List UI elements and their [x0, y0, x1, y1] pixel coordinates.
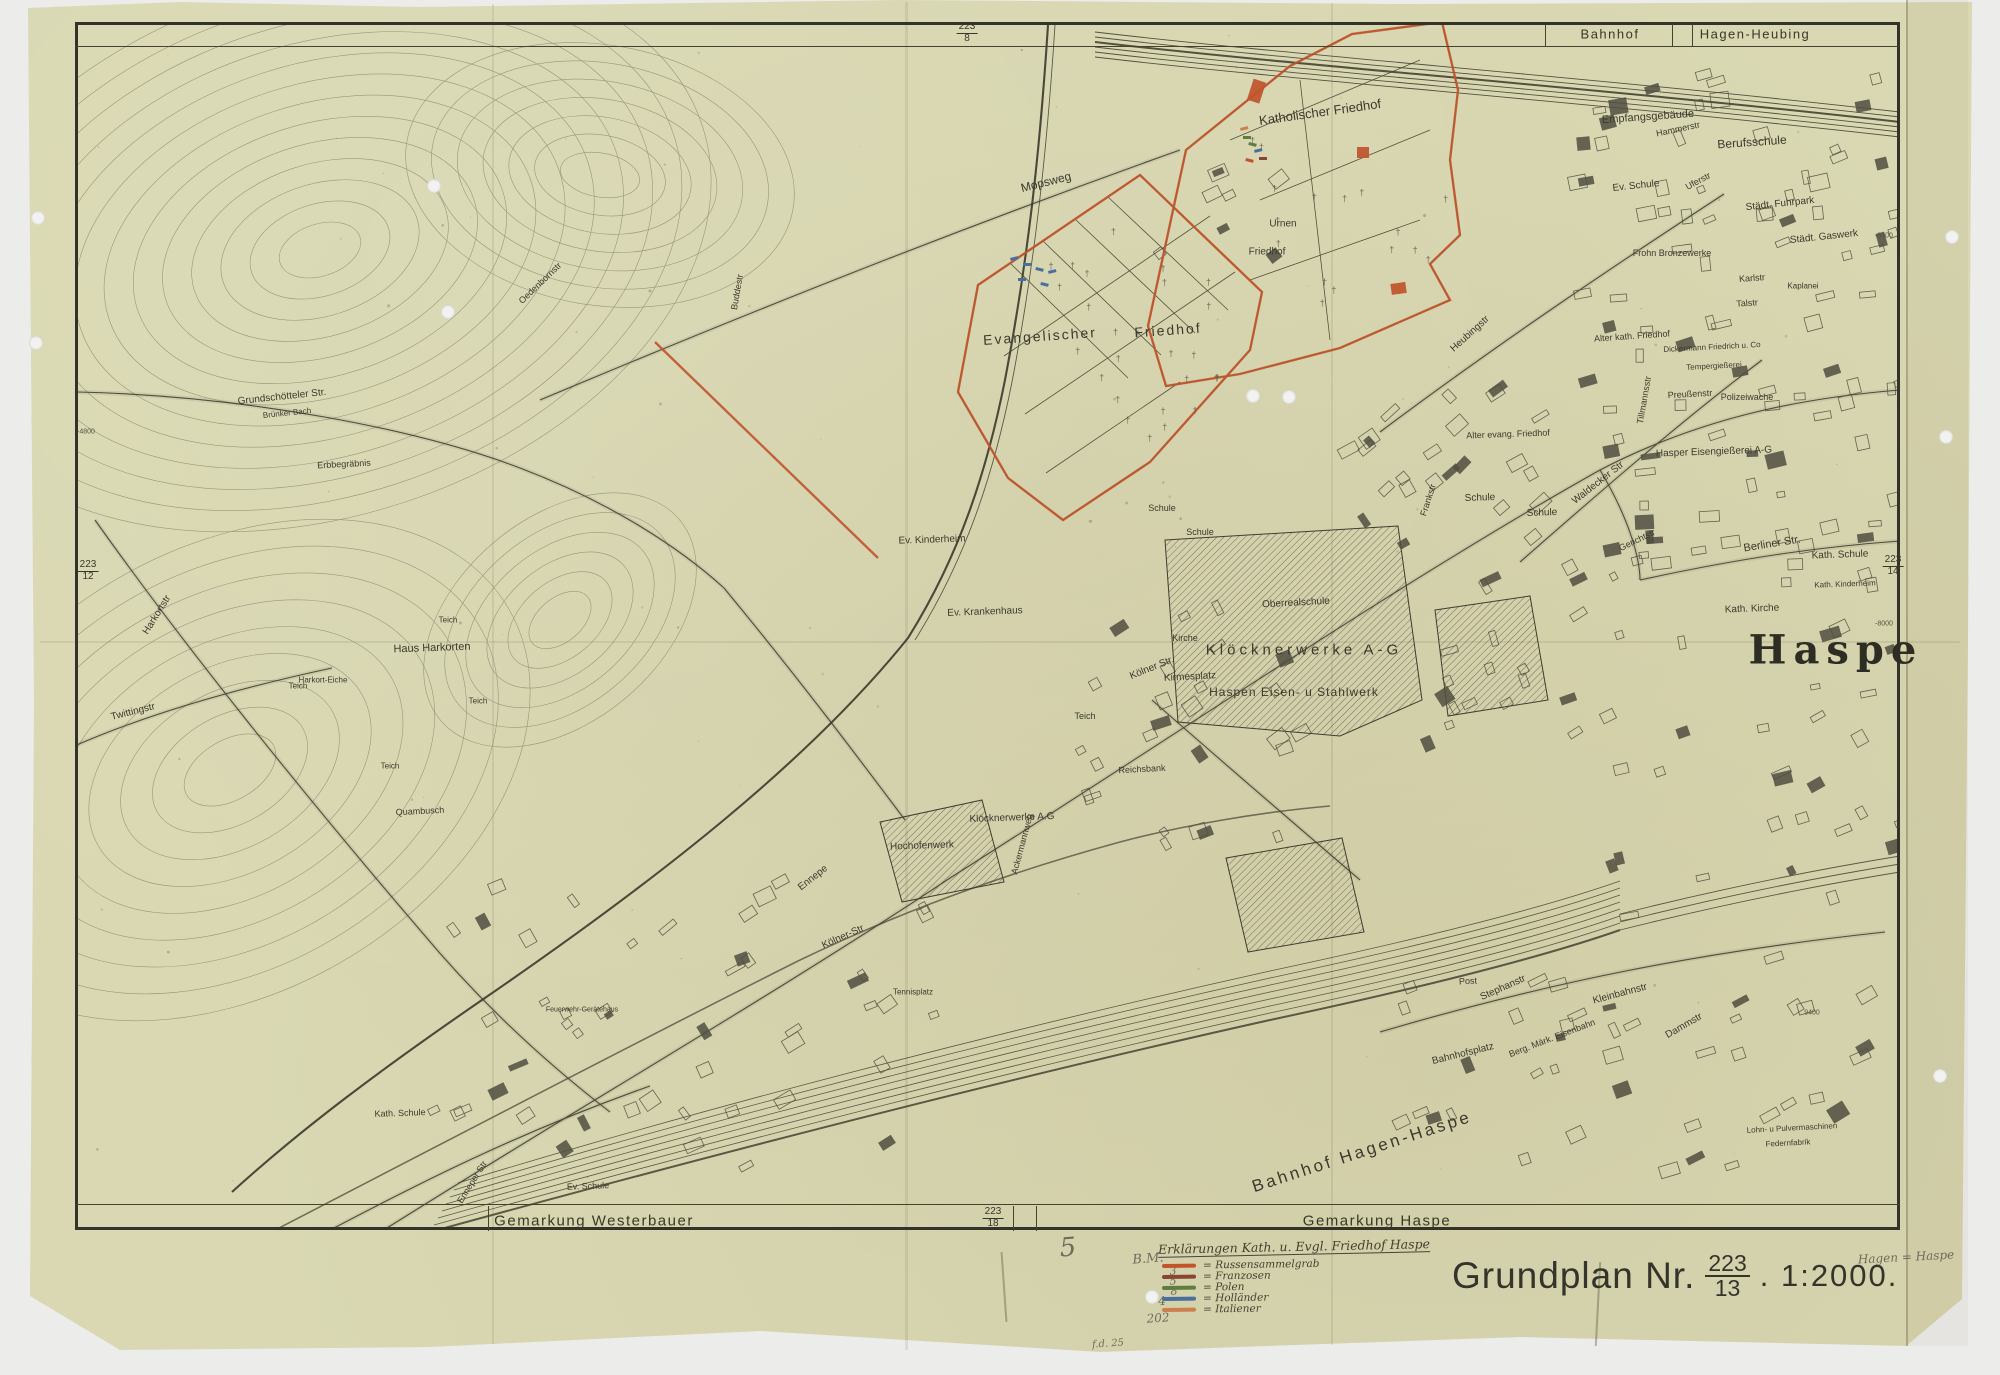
map-label: Berg. Märk. Eisenbahn [1507, 1017, 1596, 1059]
title-label: Grundplan Nr. [1452, 1255, 1695, 1297]
map-label: Ev. Schule [1612, 178, 1660, 194]
map-label: Harkort-Eiche [299, 676, 348, 685]
legend-title: Erklärungen Kath. u. Evgl. Friedhof Hasp… [1158, 1236, 1430, 1258]
map-label: Twittingstr [110, 701, 156, 723]
map-label: Alter evang. Friedhof [1466, 428, 1550, 441]
map-label: Teich [1074, 711, 1095, 721]
map-label: Teich [439, 616, 458, 625]
sheet-ref-denominator: 18 [987, 1218, 998, 1229]
title-block: Grundplan Nr. 223 13 . 1:2000. [1452, 1252, 1898, 1300]
map-label: Schule [1186, 527, 1214, 537]
map-label: Stephanstr [1479, 973, 1528, 1003]
legend-color-swatch [1162, 1263, 1196, 1267]
sheet-reference: 22314 [1883, 555, 1904, 577]
map-label: Haspen Eisen- u Stahlwerk [1209, 685, 1379, 699]
punch-hole [1145, 1290, 1159, 1304]
sheet-reference: 22312 [78, 560, 99, 582]
map-label: Dickermann Friedrich u. Co [1663, 340, 1761, 354]
map-label: Klöcknerwerke A-G [1206, 642, 1402, 659]
grid-coordinate-label: 9400 [1804, 1010, 1820, 1017]
map-label: Haus Harkorten [393, 641, 470, 656]
map-label: Haspe [1749, 627, 1924, 674]
map-label: Tennisplatz [893, 988, 933, 997]
map-label: Karlstr [1739, 272, 1766, 284]
sheet-reference: 22318 [983, 1207, 1004, 1229]
map-label: Städt. Fuhrpark [1745, 195, 1815, 213]
map-label: Ev. Schule [567, 1180, 610, 1191]
map-label: Erbbegräbnis [317, 458, 371, 471]
map-label: Hochofenwerk [890, 839, 954, 852]
map-label: Quambusch [396, 805, 445, 818]
sheet-reference: 2238 [957, 22, 978, 44]
map-label: Schule [1465, 492, 1496, 504]
legend-item: = Italiener [1158, 1300, 1458, 1315]
map-label: Kirmesplatz [1164, 670, 1217, 684]
map-label: Ennepe [796, 863, 830, 893]
map-label: Kath. Kirche [1725, 603, 1780, 616]
map-label: Berliner Str. [1743, 534, 1802, 555]
map-label: Bahnhofsplatz [1431, 1041, 1495, 1067]
map-label: Urnen [1269, 219, 1296, 230]
legend-color-swatch [1162, 1274, 1196, 1278]
handwritten-annotation: 5 [1059, 1232, 1078, 1263]
map-label: Friedhof [1249, 247, 1286, 258]
map-label: Schule [1148, 503, 1176, 513]
map-label: Hasper Eisengießerei A-G [1656, 444, 1772, 459]
map-label: Grundschötteler Str. [237, 387, 327, 407]
map-label: Oberrealschule [1262, 596, 1330, 611]
map-label: Tillmannsstr [1635, 375, 1653, 424]
punch-hole [441, 305, 455, 319]
sheet-ref-denominator: 8 [964, 33, 970, 44]
punch-hole [1939, 430, 1953, 444]
punch-hole [1933, 1069, 1947, 1083]
grid-coordinate-label: -8000 [1875, 621, 1893, 628]
punch-hole [29, 336, 43, 350]
map-label: Frohn Bronzewerke [1633, 248, 1712, 258]
legend-color-swatch [1162, 1307, 1196, 1311]
punch-hole [1246, 389, 1260, 403]
map-label: Friedhof [1134, 320, 1202, 341]
map-label: Ev. Krankenhaus [947, 605, 1023, 619]
map-label: Reichsbank [1118, 763, 1165, 775]
handwritten-annotation: f.d. 25 [1092, 1337, 1125, 1350]
legend-item-label: = Italiener [1203, 1302, 1261, 1315]
map-label: Schule [1527, 507, 1558, 519]
map-label: Buddestr [729, 273, 745, 310]
map-label: Katholischer Friedhof [1258, 96, 1382, 128]
scanned-map-page: { "colors": { "paper": "#d9d8b2", "ink":… [0, 0, 2000, 1375]
map-label: Frankstr [1418, 483, 1438, 517]
map-label: Brünker Bach [262, 406, 311, 420]
sheet-ref-denominator: 12 [82, 571, 93, 582]
legend-items: = Russensammelgrab= Franzosen= Polen= Ho… [1158, 1258, 1458, 1313]
map-label: Kath. Schule [374, 1107, 425, 1119]
map-label: Preußenstr [1668, 388, 1713, 400]
sheet-number-numerator: 223 [1705, 1252, 1749, 1277]
sheet-ref-denominator: 14 [1887, 566, 1898, 577]
map-label: Teich [381, 762, 400, 771]
legend-color-swatch [1162, 1285, 1196, 1289]
map-label: Dammstr [1664, 1011, 1705, 1041]
map-label: Gerichtstr [1617, 527, 1656, 553]
sheet-number-fraction: 223 13 [1705, 1252, 1749, 1300]
grid-coordinate-label: -8400 [1875, 233, 1893, 240]
sheet-number-denominator: 13 [1715, 1275, 1741, 1301]
map-label: Lohn- u Pulvermaschinen [1746, 1121, 1837, 1135]
map-label: Städt. Gaswerk [1789, 228, 1858, 246]
map-label: Uferstr [1684, 170, 1713, 192]
map-label: Oedenbornstr [517, 260, 564, 305]
map-label: Bahnhof Hagen-Haspe [1250, 1107, 1475, 1197]
map-label: Mopsweg [1019, 169, 1072, 195]
map-label: Ev. Kinderheim [898, 533, 965, 546]
punch-hole [1945, 230, 1959, 244]
map-label: Kaplanei [1787, 282, 1818, 291]
punch-hole [31, 211, 45, 225]
map-label-layer: Katholischer FriedhofMopswegUrnenFriedho… [0, 0, 2000, 1375]
map-label: Heubingstr [1448, 314, 1491, 355]
map-label: Feuerwehr-Gerätehaus [546, 1007, 618, 1014]
map-label: Hammerstr [1655, 119, 1701, 138]
grid-coordinate-label: -4800 [77, 429, 95, 436]
legend-color-swatch [1162, 1296, 1196, 1300]
map-label: Klöcknerwerke A.G [969, 811, 1054, 825]
map-label: Tempergießerei [1686, 360, 1742, 372]
map-label: Post [1459, 976, 1478, 987]
map-label: Kölner-Str [820, 923, 866, 951]
map-label: Polizeiwache [1721, 392, 1774, 402]
map-label: Waldecker Str [1570, 459, 1626, 506]
map-label: Berufsschule [1717, 133, 1787, 152]
map-label: Evangelischer [983, 324, 1098, 348]
cemetery-legend: Erklärungen Kath. u. Evgl. Friedhof Hasp… [1158, 1238, 1458, 1313]
map-label: Federnfabrik [1765, 1137, 1810, 1148]
map-label: Enneper Str [455, 1159, 489, 1205]
map-label: Kath. Schule [1811, 549, 1868, 562]
map-label: Talstr [1736, 297, 1758, 308]
map-label: Alter kath. Friedhof [1594, 328, 1671, 343]
map-label: Harkortstr [141, 593, 174, 636]
map-label: Kleinbahnstr [1592, 981, 1649, 1006]
map-label: Kirche [1172, 633, 1198, 643]
map-label: Teich [469, 697, 488, 706]
map-label: Kath. Kinderheim [1814, 578, 1876, 589]
punch-hole [427, 179, 441, 193]
punch-hole [1282, 390, 1296, 404]
